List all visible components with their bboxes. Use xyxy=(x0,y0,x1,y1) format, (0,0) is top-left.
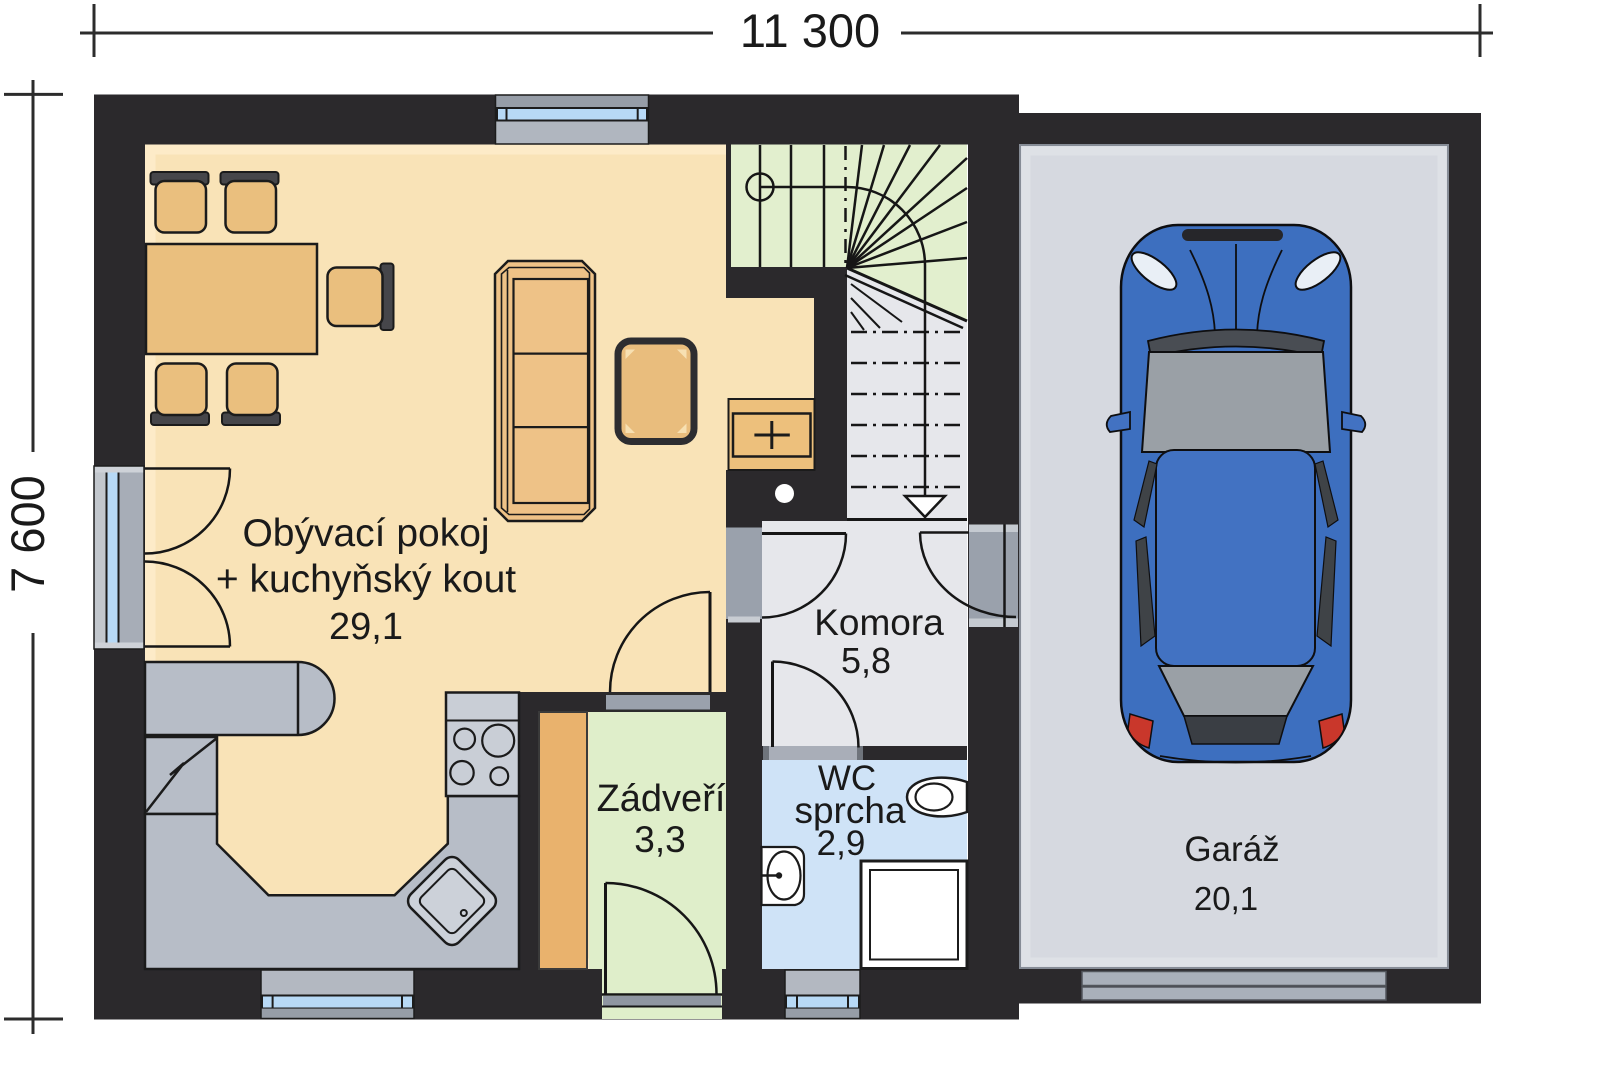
svg-text:7 600: 7 600 xyxy=(1,475,54,593)
svg-text:5,8: 5,8 xyxy=(841,640,891,681)
svg-text:11 300: 11 300 xyxy=(740,4,880,57)
svg-text:Zádveří: Zádveří xyxy=(597,778,726,820)
svg-text:3,3: 3,3 xyxy=(634,819,685,860)
svg-text:Obývací pokoj: Obývací pokoj xyxy=(242,512,489,555)
svg-text:+ kuchyňský kout: + kuchyňský kout xyxy=(216,558,516,601)
svg-text:20,1: 20,1 xyxy=(1194,880,1258,917)
svg-text:Garáž: Garáž xyxy=(1184,830,1279,869)
svg-text:29,1: 29,1 xyxy=(329,606,403,648)
svg-text:2,9: 2,9 xyxy=(817,824,866,863)
svg-text:Komora: Komora xyxy=(814,602,944,643)
